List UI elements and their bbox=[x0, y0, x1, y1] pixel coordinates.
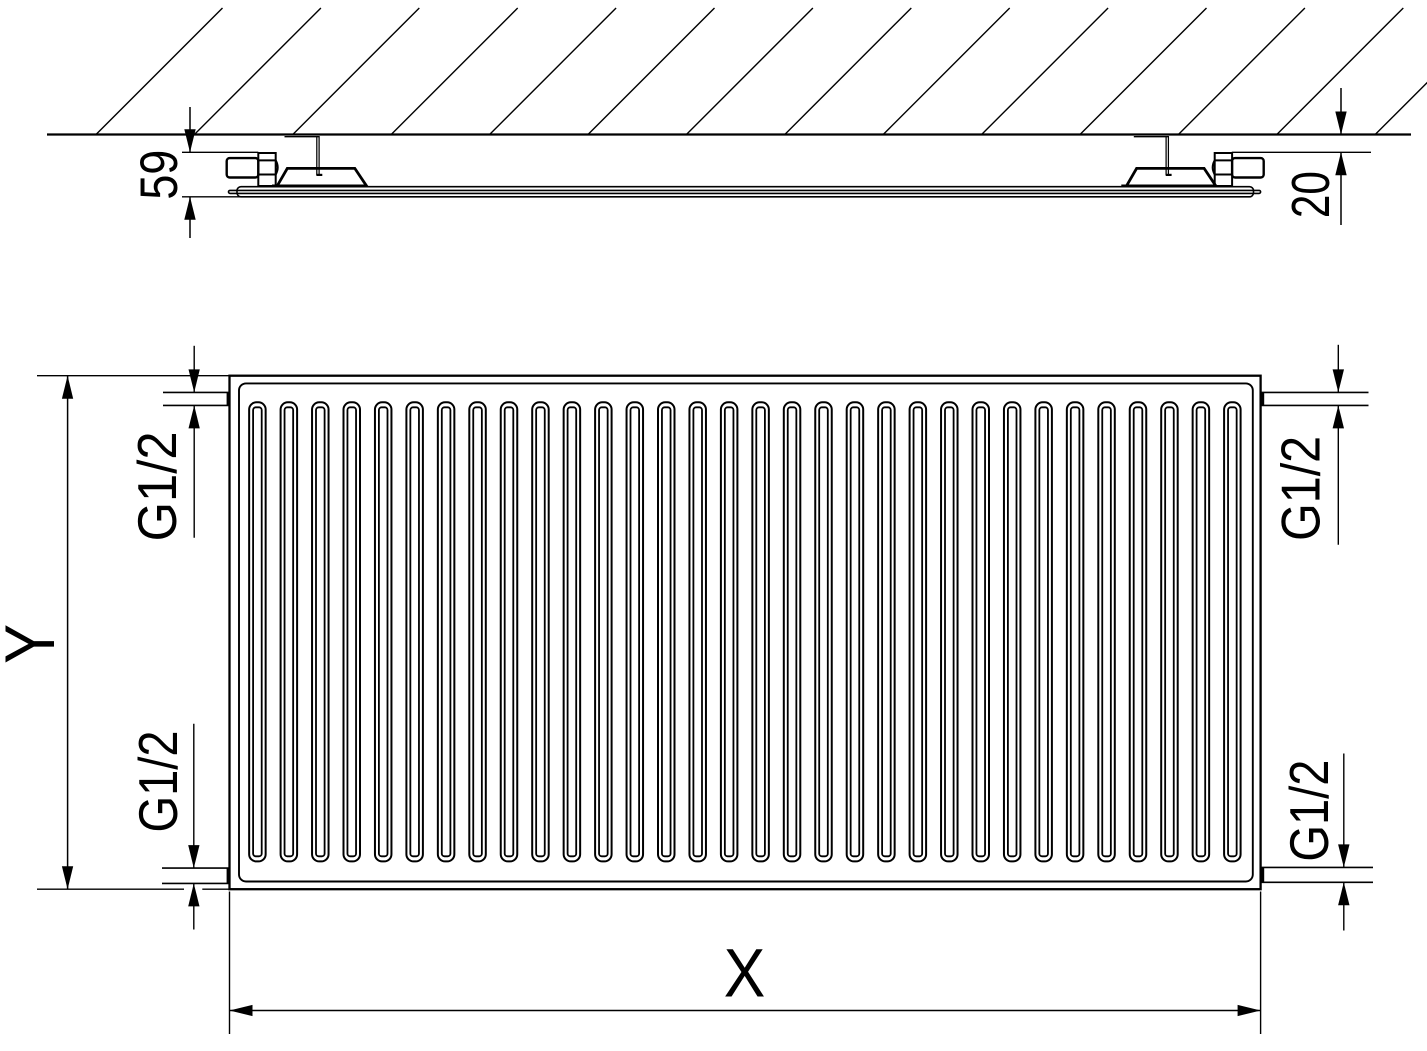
svg-text:X: X bbox=[724, 935, 766, 1012]
svg-text:G1/2: G1/2 bbox=[1278, 760, 1340, 862]
svg-text:Y: Y bbox=[0, 624, 70, 664]
svg-text:G1/2: G1/2 bbox=[127, 731, 189, 833]
svg-text:59: 59 bbox=[130, 150, 189, 200]
svg-text:20: 20 bbox=[1281, 171, 1341, 218]
svg-text:G1/2: G1/2 bbox=[126, 431, 188, 541]
svg-text:G1/2: G1/2 bbox=[1270, 436, 1332, 541]
